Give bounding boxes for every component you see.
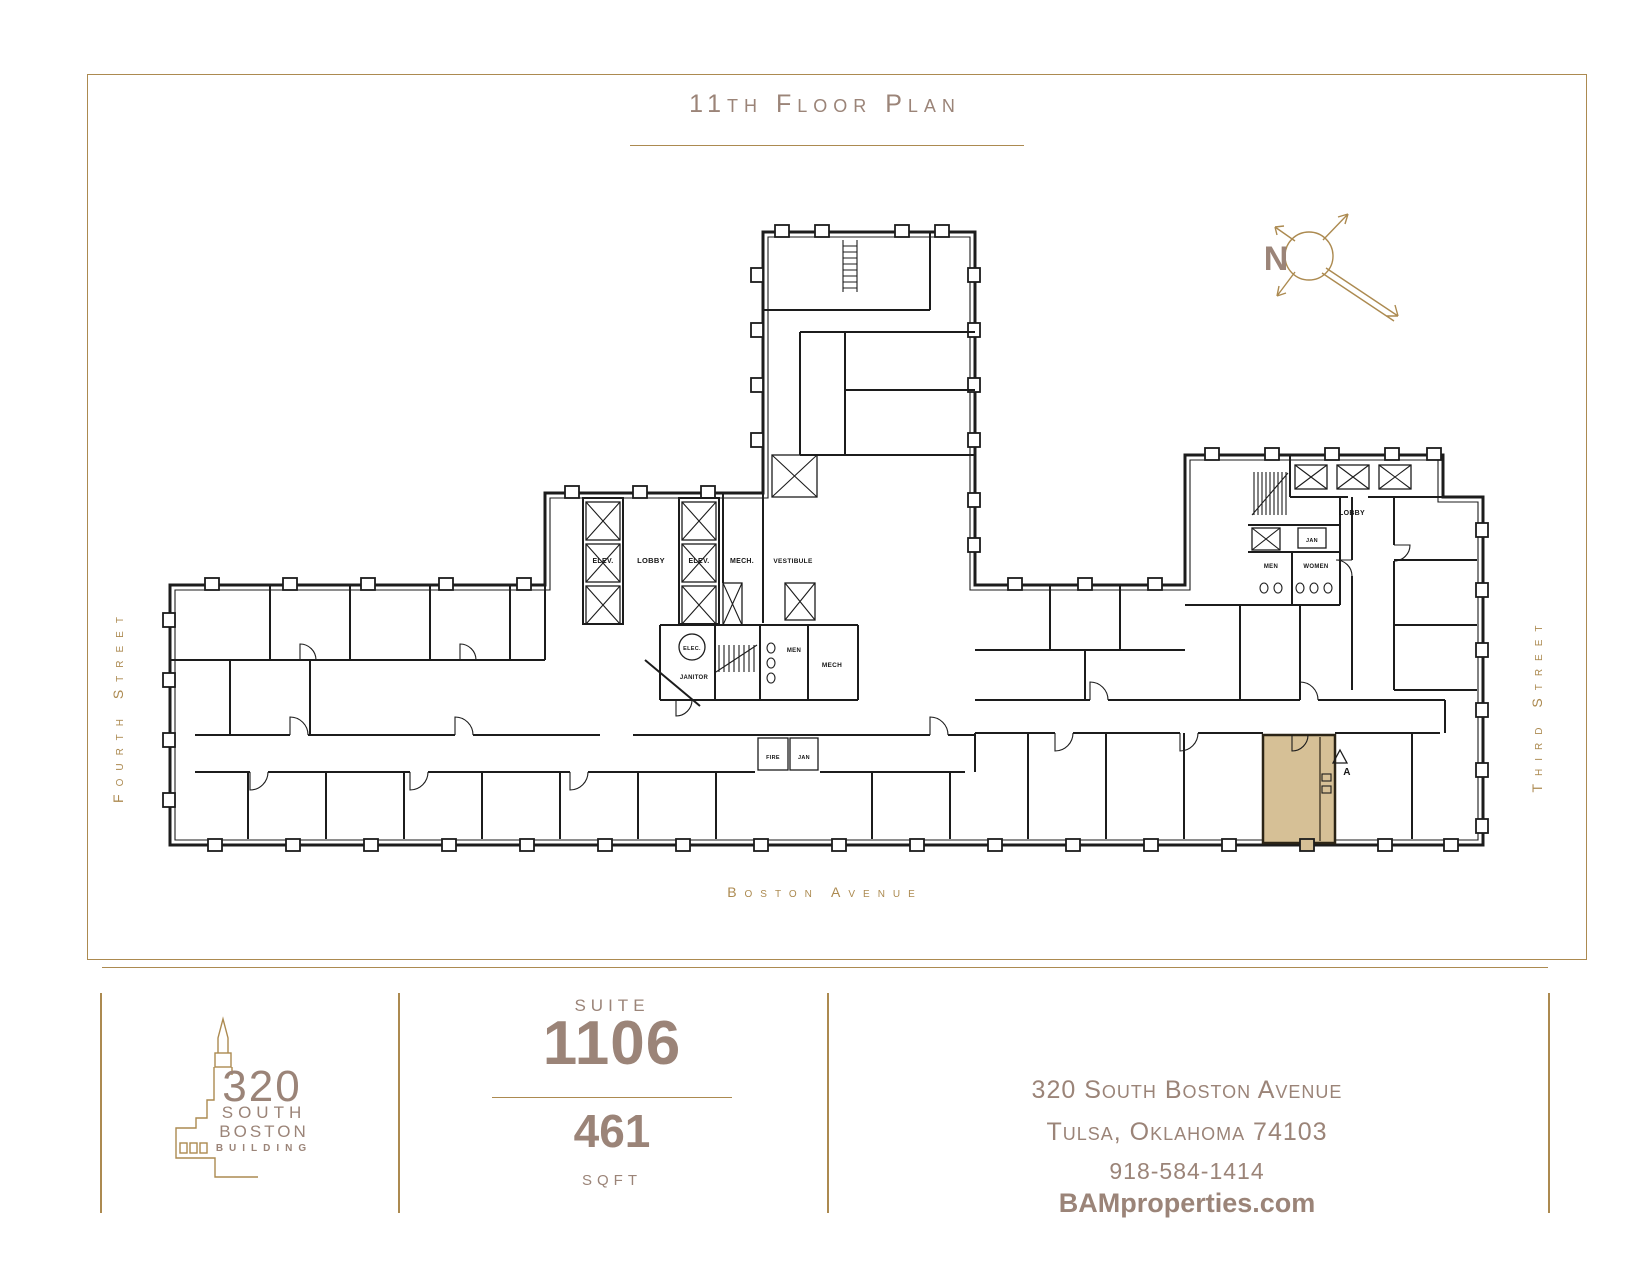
floor-plan-page: 11th Floor Plan Fourth Street Third Stre… [0,0,1650,1275]
room-label-lobby-east: LOBBY [1339,510,1365,517]
footer-top-rule [102,967,1548,968]
room-label-men-east: MEN [1264,564,1278,570]
room-label-mech-lower: MECH [822,662,842,669]
suite-1106-highlight: A [1263,735,1351,851]
contact-phone: 918-584-1414 [1109,1158,1264,1185]
room-label-janitor: JANITOR [680,675,709,681]
contact-address-line1: 320 South Boston Avenue [1032,1076,1343,1105]
suite-rule [492,1097,732,1098]
footer-divider-suite [827,993,829,1213]
east-core [1252,465,1411,593]
logo-line-south: SOUTH [222,1103,307,1123]
contact-website: BAMproperties.com [1059,1188,1316,1219]
footer-divider-right [1548,993,1550,1213]
footer-divider-left [100,993,102,1213]
room-label-mech-core: MECH. [730,558,754,565]
suite-area: 461 [574,1108,651,1154]
room-label-women-east: WOMEN [1303,564,1328,570]
room-label-men-core: MEN [787,648,801,654]
room-label-vestibule: VESTIBULE [773,558,813,565]
room-label-jan-corridor: JAN [798,755,810,761]
suite-1106-area [1263,735,1335,843]
suite-number: 1106 [543,1013,682,1075]
room-label-elev-right: ELEV. [688,558,709,565]
room-label-lobby-core: LOBBY [637,556,665,565]
suite-annotation-label: A [1343,767,1351,778]
compass-north-label: N [1264,240,1289,278]
logo-line-building: BUILDING [216,1143,312,1154]
room-label-jan-east: JAN [1306,538,1318,544]
footer-divider-logo [398,993,400,1213]
room-label-elev-left: ELEV. [592,558,613,565]
room-label-elec: ELEC. [683,646,701,652]
center-core [583,240,857,683]
room-label-fire: FIRE [766,755,780,761]
compass-icon: N [1264,214,1398,321]
contact-address-line2: Tulsa, Oklahoma 74103 [1046,1118,1327,1147]
suite-unit: SQFT [582,1172,642,1189]
logo-line-boston: BOSTON [219,1122,308,1142]
